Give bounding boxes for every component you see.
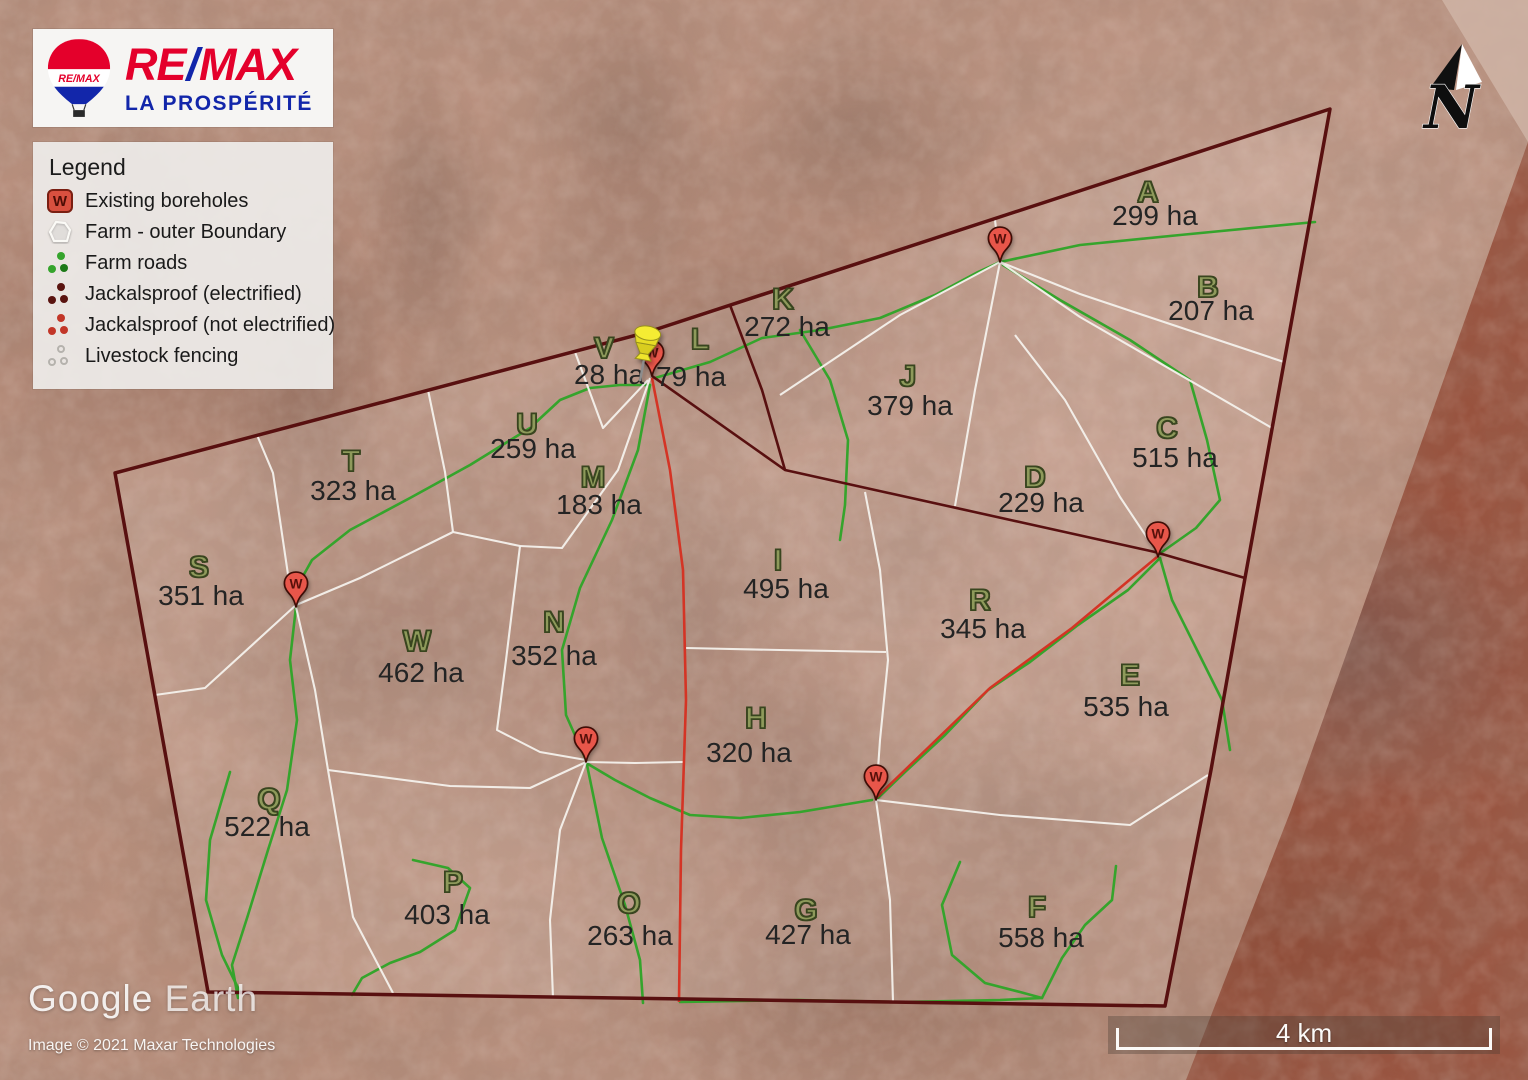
parcel-area-N: 352 ha	[511, 640, 597, 672]
parcel-area-T: 323 ha	[310, 475, 396, 507]
borehole-icon: W	[47, 189, 73, 213]
google-earth-watermark: Google Earth	[28, 978, 258, 1020]
parcel-letter-L: L	[691, 323, 709, 357]
legend-item: WExisting boreholes	[47, 189, 319, 213]
scale-bar-label: 4 km	[1276, 1018, 1332, 1049]
boundary-icon	[47, 220, 73, 244]
svg-text:W: W	[1152, 526, 1165, 541]
remax-wordmark: RE/MAX LA PROSPÉRITÉ	[125, 42, 313, 114]
borehole-marker-2[interactable]: W	[986, 226, 1014, 264]
legend-item-label: Jackalsproof (electrified)	[85, 283, 302, 306]
brand-slash: /	[186, 39, 200, 90]
legend-item-label: Jackalsproof (not electrified)	[85, 314, 335, 337]
parcel-area-P: 403 ha	[404, 899, 490, 931]
legend-item: Farm roads	[47, 251, 319, 275]
farm-roads-icon	[47, 251, 73, 275]
parcel-area-U: 259 ha	[490, 433, 576, 465]
parcel-letter-W: W	[403, 625, 431, 659]
google-earth-earth: Earth	[165, 978, 258, 1019]
parcel-area-S: 351 ha	[158, 580, 244, 612]
borehole-marker-3[interactable]: W	[1144, 521, 1172, 559]
imagery-credit: Image © 2021 Maxar Technologies	[28, 1037, 275, 1055]
svg-text:W: W	[994, 231, 1007, 246]
remax-balloon-icon: RE/MAX	[43, 36, 115, 120]
legend-item: Farm - outer Boundary	[47, 220, 319, 244]
jackalsproof-electrified-icon	[47, 282, 73, 306]
borehole-marker-5[interactable]: W	[572, 726, 600, 764]
livestock-fencing-icon	[47, 344, 73, 368]
legend-item: Livestock fencing	[47, 344, 319, 368]
parcel-area-M: 183 ha	[556, 489, 642, 521]
scale-bar: 4 km	[1108, 1016, 1500, 1054]
parcel-letter-P: P	[443, 866, 463, 900]
parcel-area-K: 272 ha	[744, 311, 830, 343]
legend-item-label: Farm - outer Boundary	[85, 221, 286, 244]
parcel-letter-F: F	[1028, 891, 1046, 925]
borehole-marker-6[interactable]: W	[862, 764, 890, 802]
legend-items: WExisting boreholesFarm - outer Boundary…	[47, 189, 319, 368]
parcel-letter-T: T	[342, 445, 360, 479]
parcel-area-R: 345 ha	[940, 613, 1026, 645]
parcel-area-A: 299 ha	[1112, 200, 1198, 232]
remax-logo-panel: RE/MAX RE/MAX LA PROSPÉRITÉ	[33, 29, 333, 127]
jackalsproof-icon	[47, 313, 73, 337]
legend-item: Jackalsproof (not electrified)	[47, 313, 319, 337]
parcel-area-J: 379 ha	[867, 390, 953, 422]
parcel-area-Q: 522 ha	[224, 811, 310, 843]
svg-text:W: W	[290, 576, 303, 591]
legend-title: Legend	[49, 154, 319, 181]
parcel-area-D: 229 ha	[998, 487, 1084, 519]
parcel-letter-J: J	[900, 360, 917, 394]
parcel-letter-N: N	[543, 606, 565, 640]
legend-panel: Legend WExisting boreholesFarm - outer B…	[33, 142, 333, 389]
office-name: LA PROSPÉRITÉ	[125, 93, 313, 114]
parcel-letter-O: O	[617, 887, 640, 921]
parcel-area-E: 535 ha	[1083, 691, 1169, 723]
yellow-pushpin-marker[interactable]	[620, 323, 670, 385]
map-canvas[interactable]: A299 haB207 haC515 haD229 haE535 haF558 …	[0, 0, 1528, 1080]
parcel-area-I: 495 ha	[743, 573, 829, 605]
parcel-area-B: 207 ha	[1168, 295, 1254, 327]
svg-text:W: W	[870, 769, 883, 784]
svg-text:W: W	[580, 731, 593, 746]
parcel-area-F: 558 ha	[998, 922, 1084, 954]
legend-item-label: Livestock fencing	[85, 345, 238, 368]
borehole-marker-4[interactable]: W	[282, 571, 310, 609]
parcel-letter-E: E	[1120, 659, 1140, 693]
balloon-text: RE/MAX	[58, 73, 100, 85]
parcel-area-C: 515 ha	[1132, 442, 1218, 474]
parcel-letter-H: H	[745, 702, 767, 736]
parcel-area-H: 320 ha	[706, 737, 792, 769]
brand-max: MAX	[199, 39, 296, 90]
legend-item-label: Existing boreholes	[85, 190, 248, 213]
parcel-area-W: 462 ha	[378, 657, 464, 689]
north-arrow: N	[1416, 40, 1496, 140]
google-earth-google: Google	[28, 978, 153, 1019]
parcel-area-O: 263 ha	[587, 920, 673, 952]
parcel-area-G: 427 ha	[765, 919, 851, 951]
brand-re: RE	[125, 39, 186, 90]
legend-item-label: Farm roads	[85, 252, 187, 275]
parcel-letter-C: C	[1156, 412, 1178, 446]
legend-item: Jackalsproof (electrified)	[47, 282, 319, 306]
north-label: N	[1422, 73, 1481, 140]
